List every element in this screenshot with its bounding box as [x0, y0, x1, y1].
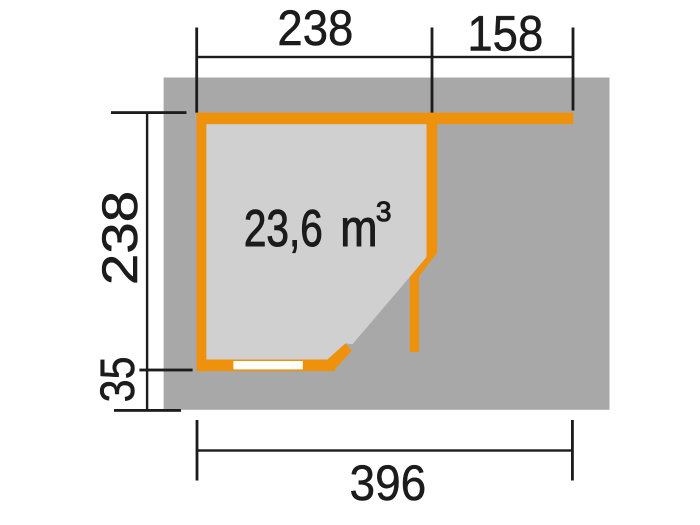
svg-text:m: m	[340, 200, 377, 258]
svg-text:238: 238	[277, 0, 353, 56]
svg-text:35: 35	[91, 356, 145, 402]
svg-text:158: 158	[467, 6, 543, 62]
svg-text:23,6: 23,6	[244, 200, 323, 258]
svg-text:3: 3	[376, 196, 392, 227]
svg-text:396: 396	[350, 455, 427, 511]
svg-text:238: 238	[92, 191, 148, 285]
